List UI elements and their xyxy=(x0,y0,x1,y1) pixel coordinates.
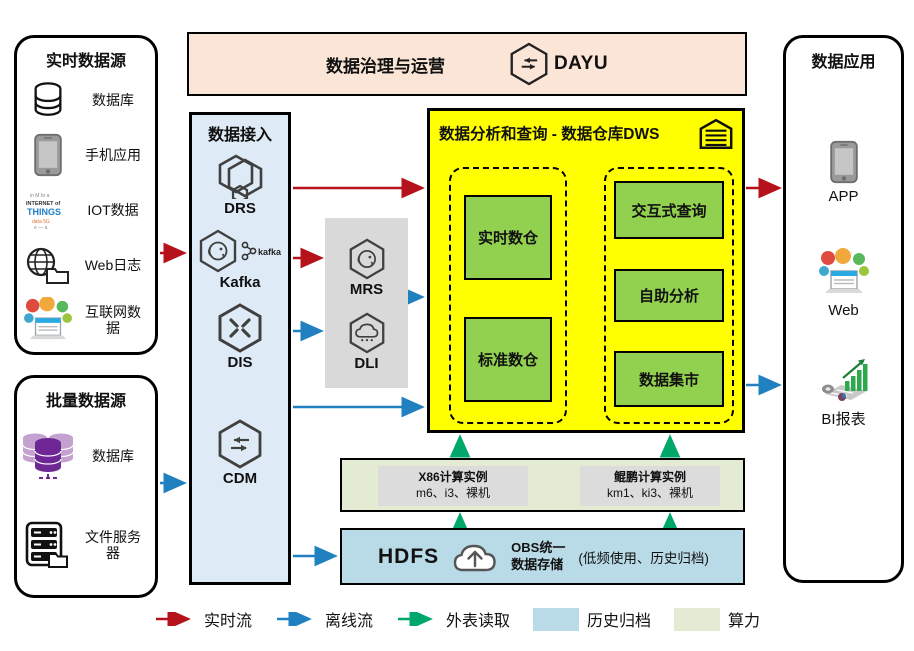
source-label: Web日志 xyxy=(75,257,151,273)
database-cluster-icon xyxy=(21,430,75,482)
dayu-brand: DAYU xyxy=(509,42,608,86)
green-arrow-icon xyxy=(396,612,438,626)
svg-text:e — a: e — a xyxy=(34,225,48,230)
legend: 实时流 离线流 外表读取 历史归档 算力 xyxy=(0,607,914,631)
service-dli: DLI xyxy=(347,312,387,372)
warehouse-group: 实时数仓 标准数仓 xyxy=(449,167,567,424)
list-item: BI报表 xyxy=(786,356,901,429)
database-icon xyxy=(21,79,75,121)
dli-icon xyxy=(347,312,387,354)
web-log-icon xyxy=(21,245,75,285)
service-cdm: CDM xyxy=(216,419,264,487)
service-dis: DIS xyxy=(216,303,264,371)
data-applications-box: 数据应用 APP xyxy=(783,35,904,583)
data-access-title: 数据接入 xyxy=(208,121,272,145)
legend-realtime-flow: 实时流 xyxy=(154,607,252,631)
legend-history-archive: 历史归档 xyxy=(533,607,651,631)
dis-label: DIS xyxy=(227,354,252,371)
service-drs: DRS xyxy=(216,153,264,217)
legend-offline-flow: 离线流 xyxy=(275,607,373,631)
blue-arrow-icon xyxy=(275,612,317,626)
source-label: 手机应用 xyxy=(75,147,151,163)
self-analysis-label: 自助分析 xyxy=(639,285,699,306)
list-item: 手机应用 xyxy=(21,127,151,182)
service-group: 交互式查询 自助分析 数据集市 xyxy=(604,167,734,424)
internet-data-icon xyxy=(21,297,75,343)
web-collage-icon xyxy=(786,248,901,298)
architecture-diagram: 数据治理与运营 DAYU 实时数据源 xyxy=(0,0,914,651)
cdm-icon xyxy=(216,419,264,469)
x86-instance-box: X86计算实例 m6、i3、裸机 xyxy=(378,466,528,506)
list-item: 数据库 xyxy=(21,72,151,127)
drs-label: DRS xyxy=(224,200,256,217)
x86-instance-spec: m6、i3、裸机 xyxy=(416,486,490,502)
x86-instance-title: X86计算实例 xyxy=(418,470,487,486)
list-item: 数据库 xyxy=(21,412,151,501)
drs-icon xyxy=(216,153,264,199)
file-server-icon xyxy=(21,521,75,569)
phone-icon xyxy=(21,133,75,177)
legend-compute-power: 算力 xyxy=(674,607,760,631)
interactive-query-label: 交互式查询 xyxy=(631,200,706,221)
list-item: in M br a INTERNET of INTERNET of THINGS… xyxy=(21,182,151,237)
realtime-warehouse-box: 实时数仓 xyxy=(464,195,552,280)
governance-title: 数据治理与运营 xyxy=(326,52,445,77)
mrs-icon xyxy=(347,238,387,280)
kunpeng-instance-title: 鲲鹏计算实例 xyxy=(614,470,686,486)
data-access-column: 数据接入 DRS xyxy=(189,112,291,585)
realtime-sources-box: 实时数据源 数据库 手机应用 xyxy=(14,35,158,355)
svg-text:kafka: kafka xyxy=(258,247,282,257)
source-label: IOT数据 xyxy=(75,202,151,218)
kafka-label: Kafka xyxy=(220,274,261,291)
hdfs-label: HDFS xyxy=(378,545,439,569)
svg-text:THINGS: THINGS xyxy=(27,207,61,217)
app-phone-icon xyxy=(786,140,901,184)
bi-report-icon xyxy=(786,356,901,404)
realtime-warehouse-label: 实时数仓 xyxy=(478,227,538,248)
mrs-label: MRS xyxy=(350,281,383,298)
dayu-icon xyxy=(509,42,549,86)
legend-external-read: 外表读取 xyxy=(396,607,510,631)
dayu-label: DAYU xyxy=(554,53,608,75)
batch-sources-box: 批量数据源 xyxy=(14,375,158,598)
obs-cloud-icon xyxy=(452,539,498,575)
app-label: APP xyxy=(786,188,901,205)
list-item: Web日志 xyxy=(21,238,151,293)
obs-note: (低频使用、历史归档) xyxy=(578,547,709,567)
web-label: Web xyxy=(786,302,901,319)
source-label: 互联网数据 xyxy=(85,304,141,336)
data-applications-title: 数据应用 xyxy=(786,38,901,73)
data-mart-box: 数据集市 xyxy=(614,351,724,407)
source-label: 文件服务器 xyxy=(85,529,141,561)
source-label: 数据库 xyxy=(75,92,151,108)
service-kafka: kafka Kafka xyxy=(197,229,283,291)
kafka-logo-icon: kafka xyxy=(239,240,283,262)
data-mart-label: 数据集市 xyxy=(639,369,699,390)
dws-box: 数据分析和查询 - 数据仓库DWS 实时数仓 标准数仓 交互式查询 xyxy=(427,108,745,433)
obs-label: OBS统一 数据存储 xyxy=(511,540,565,573)
dli-label: DLI xyxy=(354,355,378,372)
bi-report-label: BI报表 xyxy=(786,408,901,429)
red-arrow-icon xyxy=(154,612,196,626)
governance-banner: 数据治理与运营 DAYU xyxy=(187,32,747,96)
kunpeng-instance-box: 鲲鹏计算实例 km1、ki3、裸机 xyxy=(580,466,720,506)
dws-title: 数据分析和查询 - 数据仓库DWS xyxy=(439,122,659,144)
history-archive-swatch xyxy=(533,608,579,631)
standard-warehouse-box: 标准数仓 xyxy=(464,317,552,402)
list-item: APP xyxy=(786,140,901,205)
realtime-sources-title: 实时数据源 xyxy=(21,44,151,72)
kafka-hexagon-icon xyxy=(197,229,239,273)
source-label: 数据库 xyxy=(75,448,151,464)
batch-sources-title: 批量数据源 xyxy=(21,384,151,412)
processing-box: MRS DLI xyxy=(325,218,408,388)
warehouse-icon xyxy=(697,117,735,150)
compute-power-swatch xyxy=(674,608,720,631)
service-mrs: MRS xyxy=(347,238,387,298)
dis-icon xyxy=(216,303,264,353)
list-item: 文件服务器 xyxy=(21,501,151,590)
standard-warehouse-label: 标准数仓 xyxy=(478,349,538,370)
interactive-query-box: 交互式查询 xyxy=(614,181,724,239)
storage-box: HDFS OBS统一 数据存储 (低频使用、历史归档) xyxy=(340,528,745,585)
self-analysis-box: 自助分析 xyxy=(614,269,724,322)
cdm-label: CDM xyxy=(223,470,257,487)
svg-text:in M br a: in M br a xyxy=(30,193,50,199)
list-item: Web xyxy=(786,248,901,319)
list-item: 互联网数据 xyxy=(21,293,151,348)
kunpeng-instance-spec: km1、ki3、裸机 xyxy=(607,486,693,502)
compute-box: X86计算实例 m6、i3、裸机 鲲鹏计算实例 km1、ki3、裸机 xyxy=(340,458,745,512)
iot-wordcloud-icon: in M br a INTERNET of INTERNET of THINGS… xyxy=(21,190,75,230)
